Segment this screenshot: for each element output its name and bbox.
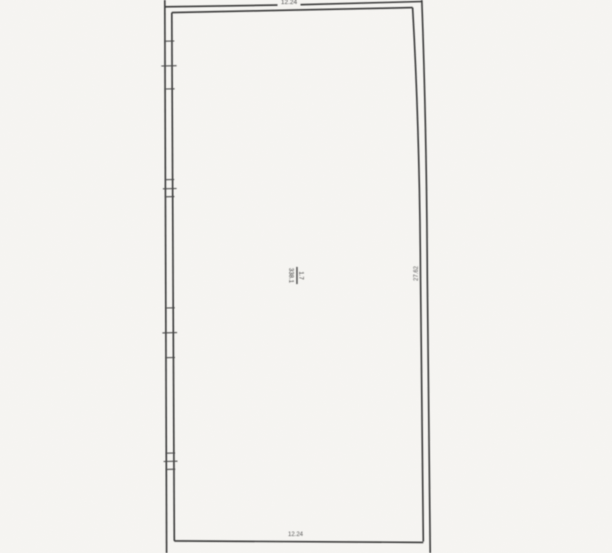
svg-text:27.62: 27.62 xyxy=(414,265,420,281)
svg-text:12.24: 12.24 xyxy=(281,0,298,6)
svg-text:1.7: 1.7 xyxy=(297,271,303,280)
svg-text:338.1: 338.1 xyxy=(288,268,294,284)
svg-text:12.24: 12.24 xyxy=(288,532,304,538)
